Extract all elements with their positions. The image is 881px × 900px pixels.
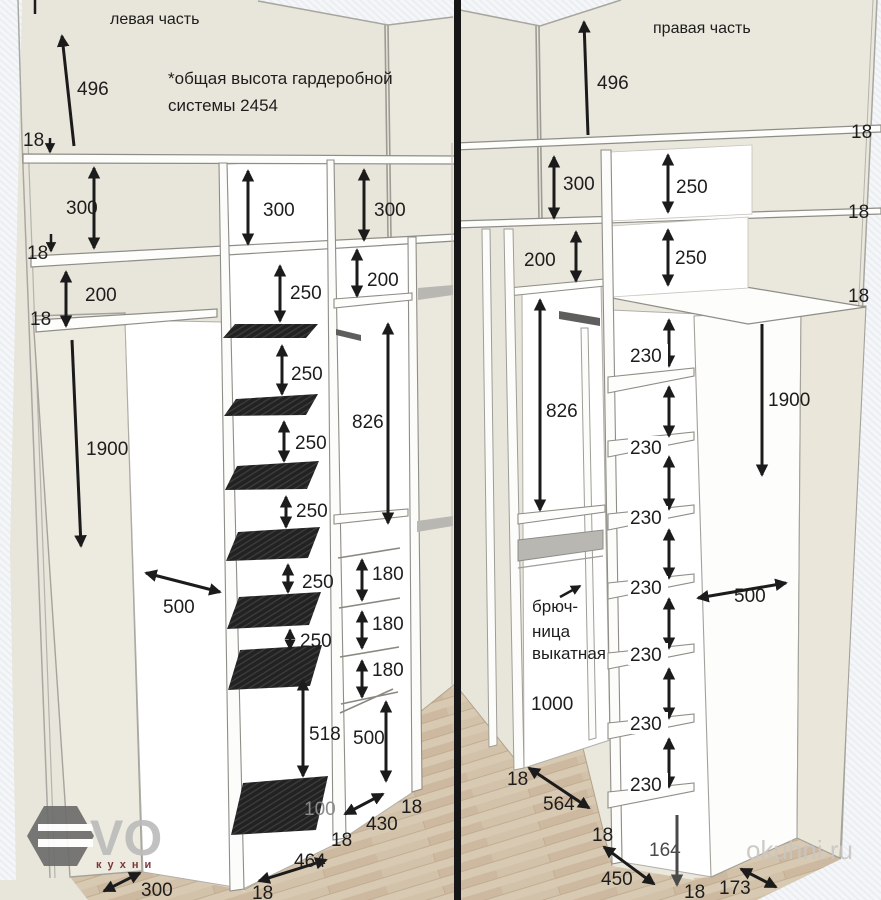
svg-text:230: 230 <box>630 578 662 599</box>
svg-text:230: 230 <box>630 508 662 529</box>
svg-text:1900: 1900 <box>768 390 810 411</box>
svg-text:826: 826 <box>546 401 578 422</box>
svg-text:250: 250 <box>675 248 707 269</box>
svg-text:300: 300 <box>374 200 406 221</box>
svg-text:правая часть: правая часть <box>653 20 751 37</box>
svg-text:300: 300 <box>263 200 295 221</box>
svg-text:системы 2454: системы 2454 <box>168 96 278 115</box>
svg-text:500: 500 <box>734 586 766 607</box>
svg-text:18: 18 <box>592 825 613 846</box>
svg-text:450: 450 <box>601 869 633 890</box>
svg-text:250: 250 <box>296 501 328 522</box>
svg-text:500: 500 <box>353 728 385 749</box>
svg-text:300: 300 <box>141 880 173 900</box>
svg-text:430: 430 <box>366 814 398 835</box>
svg-text:250: 250 <box>295 433 327 454</box>
svg-text:230: 230 <box>630 714 662 735</box>
svg-text:230: 230 <box>630 775 662 796</box>
svg-text:18: 18 <box>331 830 352 851</box>
svg-text:VO: VO <box>90 810 162 866</box>
svg-text:173: 173 <box>719 878 751 899</box>
svg-text:200: 200 <box>524 250 556 271</box>
svg-text:18: 18 <box>30 309 51 330</box>
svg-text:выкатная: выкатная <box>532 644 606 663</box>
svg-text:18: 18 <box>848 202 869 223</box>
svg-text:18: 18 <box>507 769 528 790</box>
svg-text:518: 518 <box>309 724 341 745</box>
svg-text:250: 250 <box>290 283 322 304</box>
svg-text:564: 564 <box>543 794 575 815</box>
svg-text:18: 18 <box>23 130 44 151</box>
svg-text:брюч-: брюч- <box>532 597 578 616</box>
svg-text:18: 18 <box>684 882 705 900</box>
svg-text:250: 250 <box>300 631 332 652</box>
svg-text:826: 826 <box>352 412 384 433</box>
svg-text:18: 18 <box>27 243 48 264</box>
svg-text:230: 230 <box>630 438 662 459</box>
svg-text:200: 200 <box>85 285 117 306</box>
svg-text:180: 180 <box>372 660 404 681</box>
svg-text:кухни: кухни <box>96 859 157 871</box>
svg-text:18: 18 <box>401 797 422 818</box>
svg-text:496: 496 <box>77 79 109 100</box>
svg-text:18: 18 <box>851 122 872 143</box>
svg-text:1000: 1000 <box>531 694 573 715</box>
svg-text:18: 18 <box>252 883 273 900</box>
svg-text:496: 496 <box>597 73 629 94</box>
svg-text:200: 200 <box>367 270 399 291</box>
svg-text:180: 180 <box>372 614 404 635</box>
svg-text:180: 180 <box>372 564 404 585</box>
svg-text:464: 464 <box>294 851 326 872</box>
svg-text:164: 164 <box>649 840 681 861</box>
svg-text:300: 300 <box>563 174 595 195</box>
svg-text:230: 230 <box>630 645 662 666</box>
svg-text:250: 250 <box>291 364 323 385</box>
svg-text:300: 300 <box>66 198 98 219</box>
svg-text:230: 230 <box>630 346 662 367</box>
svg-text:*общая высота гардеробной: *общая высота гардеробной <box>168 69 393 88</box>
svg-text:1900: 1900 <box>86 439 128 460</box>
svg-text:18: 18 <box>848 286 869 307</box>
svg-text:250: 250 <box>676 177 708 198</box>
svg-text:okuhni.ru: okuhni.ru <box>746 835 853 865</box>
svg-text:250: 250 <box>302 572 334 593</box>
svg-text:левая часть: левая часть <box>110 11 199 28</box>
svg-text:500: 500 <box>163 597 195 618</box>
svg-text:100: 100 <box>304 799 336 820</box>
svg-text:ница: ница <box>532 622 571 641</box>
